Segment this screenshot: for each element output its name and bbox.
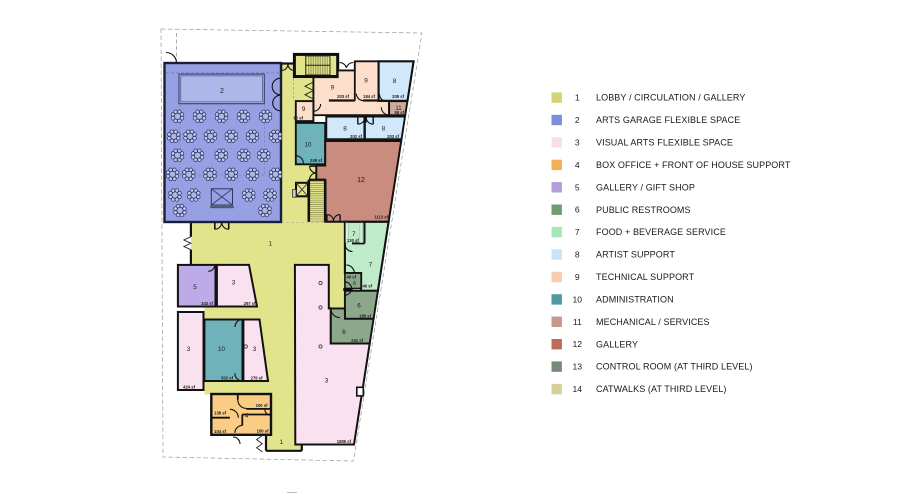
svg-text:100 sf: 100 sf <box>256 403 268 408</box>
svg-text:279 sf: 279 sf <box>251 375 263 380</box>
svg-text:8: 8 <box>575 250 580 260</box>
svg-text:CATWALKS (AT THIRD LEVEL): CATWALKS (AT THIRD LEVEL) <box>596 384 727 394</box>
svg-text:ARTIST SUPPORT: ARTIST SUPPORT <box>596 250 675 260</box>
svg-text:241 sf: 241 sf <box>351 338 363 343</box>
svg-text:GALLERY: GALLERY <box>596 339 638 349</box>
svg-text:9: 9 <box>364 78 368 85</box>
svg-text:10: 10 <box>573 294 583 304</box>
svg-text:502 sf: 502 sf <box>221 375 233 380</box>
svg-text:424 sf: 424 sf <box>183 384 195 389</box>
svg-text:9: 9 <box>302 106 306 113</box>
svg-text:7: 7 <box>575 227 580 237</box>
svg-text:ARTS GARAGE FLEXIBLE SPACE: ARTS GARAGE FLEXIBLE SPACE <box>596 115 740 125</box>
svg-text:9: 9 <box>575 272 580 282</box>
svg-text:1885 sf: 1885 sf <box>337 439 352 444</box>
svg-text:202 sf: 202 sf <box>350 134 362 139</box>
svg-text:CONTROL ROOM (AT THIRD LEVEL): CONTROL ROOM (AT THIRD LEVEL) <box>596 362 753 372</box>
svg-text:7: 7 <box>352 231 356 238</box>
svg-text:8: 8 <box>343 126 347 133</box>
svg-text:138 sf: 138 sf <box>214 410 226 415</box>
svg-text:10: 10 <box>218 346 225 353</box>
svg-text:14: 14 <box>573 384 583 394</box>
svg-text:11: 11 <box>573 317 582 327</box>
svg-text:6: 6 <box>342 329 346 336</box>
svg-text:208 sf: 208 sf <box>392 94 404 99</box>
svg-text:ADMINISTRATION: ADMINISTRATION <box>596 294 674 304</box>
svg-text:184 sf: 184 sf <box>363 94 375 99</box>
svg-text:8: 8 <box>393 78 397 85</box>
svg-text:80 sf: 80 sf <box>293 116 303 121</box>
svg-text:6: 6 <box>357 303 361 310</box>
svg-text:2: 2 <box>575 115 580 125</box>
svg-text:9: 9 <box>331 85 335 92</box>
svg-text:1: 1 <box>575 93 580 103</box>
svg-text:BOX OFFICE + FRONT OF HOUSE SU: BOX OFFICE + FRONT OF HOUSE SUPPORT <box>596 160 791 170</box>
svg-text:5: 5 <box>575 182 580 192</box>
svg-text:3: 3 <box>325 378 329 385</box>
svg-text:13: 13 <box>573 362 583 372</box>
svg-text:12: 12 <box>357 177 365 184</box>
svg-text:1: 1 <box>280 439 284 446</box>
svg-text:MECHANICAL / SERVICES: MECHANICAL / SERVICES <box>596 317 710 327</box>
svg-text:10: 10 <box>305 142 312 149</box>
svg-text:203 sf: 203 sf <box>337 94 349 99</box>
svg-text:49 sf: 49 sf <box>346 275 356 280</box>
svg-text:3: 3 <box>575 137 580 147</box>
svg-text:104 sf: 104 sf <box>214 429 226 434</box>
svg-text:1113 sf: 1113 sf <box>374 215 388 220</box>
svg-text:248 sf: 248 sf <box>310 158 322 163</box>
svg-text:TECHNICAL SUPPORT: TECHNICAL SUPPORT <box>596 272 695 282</box>
svg-text:58 sf: 58 sf <box>394 110 404 115</box>
svg-text:GALLERY / GIFT SHOP: GALLERY / GIFT SHOP <box>596 182 695 192</box>
svg-text:246 sf: 246 sf <box>360 284 372 289</box>
svg-text:6: 6 <box>575 205 580 215</box>
svg-text:1: 1 <box>269 240 273 247</box>
svg-text:3: 3 <box>232 280 236 287</box>
svg-text:180 sf: 180 sf <box>359 313 371 318</box>
svg-text:203 sf: 203 sf <box>387 134 399 139</box>
svg-text:4: 4 <box>575 160 580 170</box>
svg-text:2: 2 <box>220 88 224 95</box>
svg-text:100 sf: 100 sf <box>257 429 269 434</box>
svg-text:3: 3 <box>187 346 191 353</box>
svg-text:3: 3 <box>253 346 257 353</box>
svg-text:6: 6 <box>353 281 356 287</box>
svg-text:FOOD + BEVERAGE SERVICE: FOOD + BEVERAGE SERVICE <box>596 227 726 237</box>
svg-text:4: 4 <box>245 413 249 420</box>
svg-text:297 sf: 297 sf <box>244 301 256 306</box>
svg-text:LOBBY / CIRCULATION / GALLERY: LOBBY / CIRCULATION / GALLERY <box>596 93 745 103</box>
svg-text:343 sf: 343 sf <box>201 301 213 306</box>
svg-text:130 sf: 130 sf <box>347 238 359 243</box>
svg-text:12: 12 <box>573 339 583 349</box>
svg-text:VISUAL ARTS FLEXIBLE SPACE: VISUAL ARTS FLEXIBLE SPACE <box>596 138 733 148</box>
svg-text:PUBLIC RESTROOMS: PUBLIC RESTROOMS <box>596 205 691 215</box>
svg-text:7: 7 <box>369 262 373 269</box>
svg-text:8: 8 <box>382 126 386 133</box>
svg-text:5: 5 <box>193 284 197 291</box>
